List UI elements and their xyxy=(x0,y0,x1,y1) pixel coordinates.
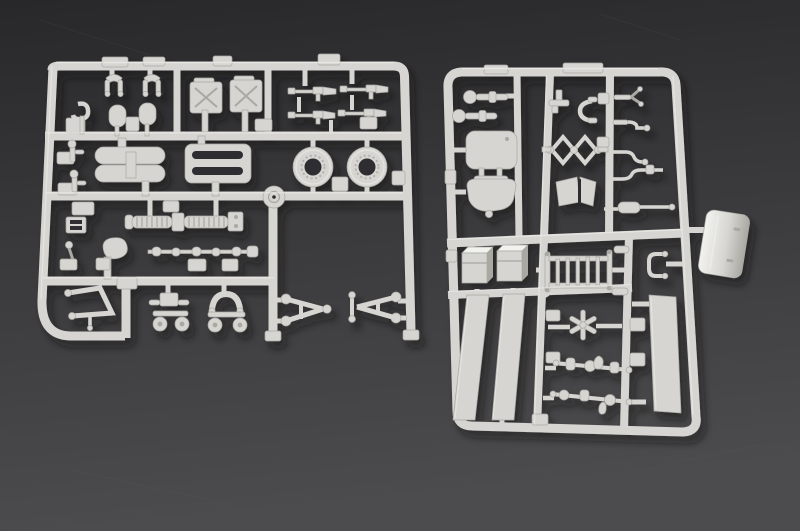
attachment-pad xyxy=(630,353,645,366)
sprue-photo xyxy=(0,0,800,531)
ammo-box xyxy=(462,247,493,283)
belt-buckle xyxy=(66,217,86,233)
curved-fender xyxy=(697,209,750,279)
attachment-pad xyxy=(597,137,609,147)
sleeve-fitting xyxy=(612,288,628,295)
attachment-pad xyxy=(598,93,609,104)
runner-foot xyxy=(403,330,419,340)
attachment-pad xyxy=(446,250,457,262)
road-wheel-ring xyxy=(293,147,333,187)
folded-plate xyxy=(556,177,596,206)
gate-disc xyxy=(263,186,285,208)
attachment-pad xyxy=(222,259,238,271)
attachment-pad xyxy=(255,119,272,131)
attachment-pad xyxy=(546,310,560,321)
sleeve-fitting xyxy=(614,246,629,253)
runner-foot xyxy=(265,331,281,341)
attachment-pad xyxy=(117,277,137,289)
attachment-pad xyxy=(392,171,405,185)
attachment-pad xyxy=(630,318,645,331)
photo-canvas xyxy=(0,0,800,531)
ammo-box xyxy=(497,245,528,281)
sprue-tab xyxy=(213,56,232,66)
attachment-pad xyxy=(445,170,456,184)
attachment-pad xyxy=(332,177,348,191)
road-wheel-ring xyxy=(347,147,387,187)
attachment-pad xyxy=(360,117,377,129)
sprue-tab xyxy=(318,54,340,65)
sprue-tab xyxy=(484,65,508,74)
attachment-pad xyxy=(188,259,206,271)
tow-hook-stem xyxy=(80,116,84,134)
sprue-tab xyxy=(143,57,165,66)
attachment-pad xyxy=(72,202,94,215)
